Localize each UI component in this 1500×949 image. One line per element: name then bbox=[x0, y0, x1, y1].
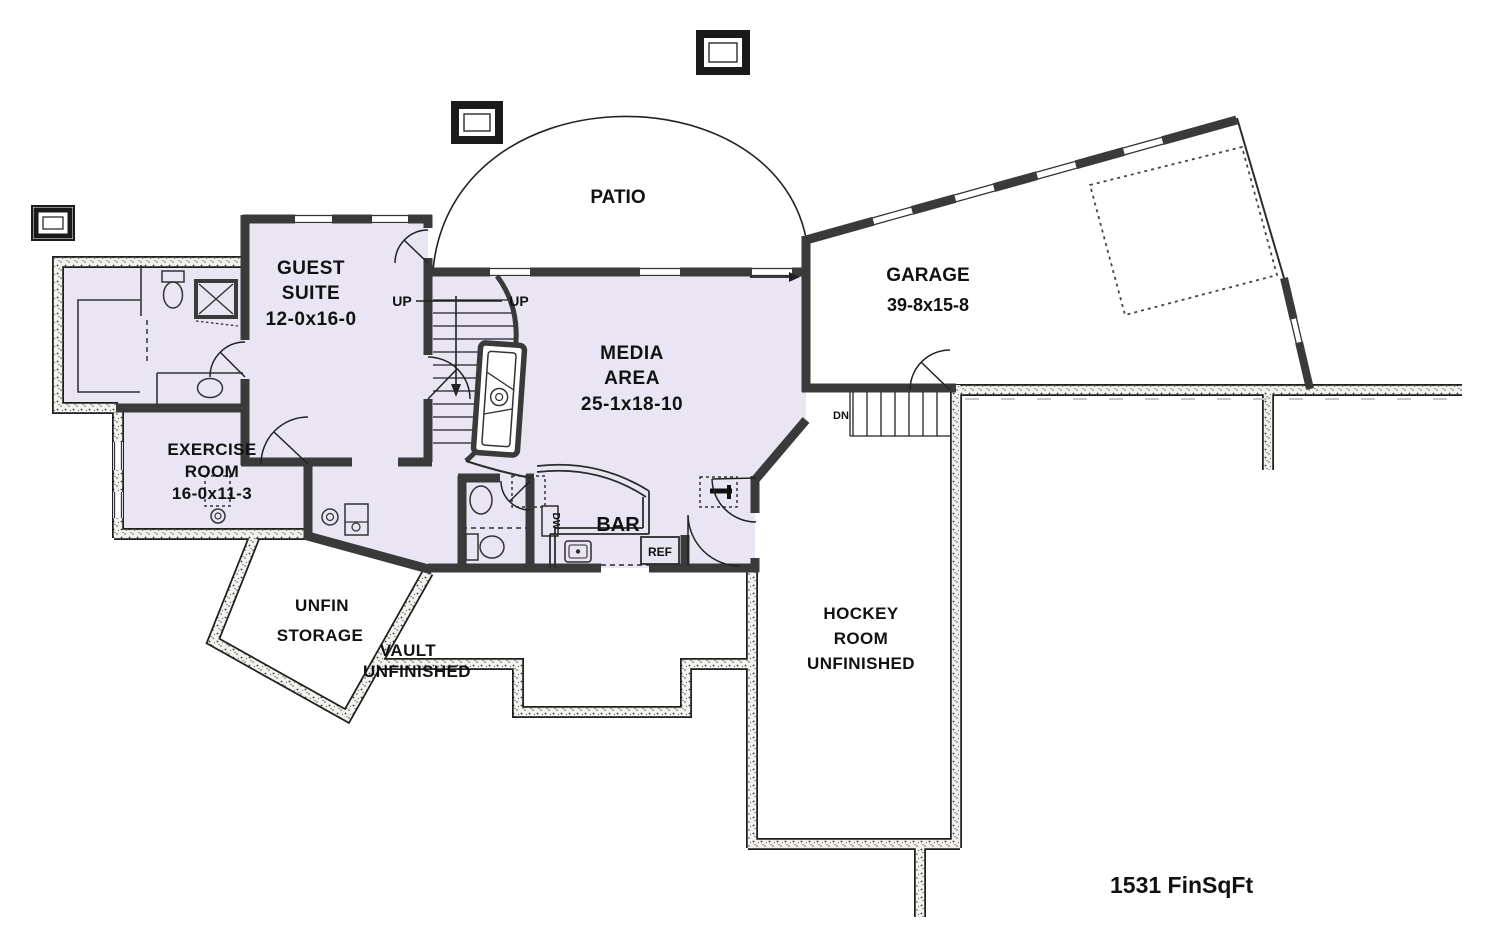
guest-suite-label-2: SUITE bbox=[282, 283, 340, 304]
unfin-storage-label-1: UNFIN bbox=[295, 596, 349, 615]
garage-dims: 39-8x15-8 bbox=[887, 295, 969, 315]
stairs-up-label-left: UP bbox=[392, 293, 411, 309]
stairs-up-label-right: UP bbox=[509, 293, 528, 309]
exercise-room-label-1: EXERCISE bbox=[167, 440, 256, 459]
media-area-label-1: MEDIA bbox=[600, 343, 664, 364]
hockey-room-label-1: HOCKEY bbox=[823, 604, 898, 623]
hockey-room-label-3: UNFINISHED bbox=[807, 654, 915, 673]
refrigerator-label: REF bbox=[648, 545, 672, 559]
media-area-dims: 25-1x18-10 bbox=[581, 394, 683, 415]
bar-label: BAR bbox=[596, 514, 640, 536]
pier-1 bbox=[697, 31, 749, 74]
vault-label-1: VAULT bbox=[380, 641, 436, 660]
stairs-down bbox=[850, 392, 951, 436]
media-fireplace-fixture bbox=[473, 343, 525, 456]
stairs-down-label: DN bbox=[833, 410, 849, 422]
deck-piers bbox=[32, 31, 749, 240]
pier-3 bbox=[32, 206, 74, 240]
garage-parking-outline bbox=[1090, 147, 1277, 315]
patio-label: PATIO bbox=[590, 187, 645, 208]
vault-label-2: UNFINISHED bbox=[363, 662, 471, 681]
guest-suite-label-1: GUEST bbox=[277, 258, 345, 279]
exercise-room-label-2: ROOM bbox=[185, 462, 239, 481]
pier-2 bbox=[452, 102, 502, 143]
finished-sqft-label: 1531 FinSqFt bbox=[1110, 872, 1253, 898]
unfin-storage-label-2: STORAGE bbox=[277, 626, 364, 645]
media-area-label-2: AREA bbox=[604, 368, 660, 389]
floor-plan-canvas: PATIO GUEST SUITE 12-0x16-0 GARAGE 39-8x… bbox=[0, 0, 1500, 949]
dishwasher-label: DW bbox=[550, 513, 561, 530]
guest-suite-dims: 12-0x16-0 bbox=[265, 309, 356, 330]
garage-walls bbox=[805, 117, 1313, 390]
floor-plan-page: PATIO GUEST SUITE 12-0x16-0 GARAGE 39-8x… bbox=[0, 0, 1500, 949]
hockey-room-label-2: ROOM bbox=[834, 629, 888, 648]
exercise-room-dims: 16-0x11-3 bbox=[172, 484, 252, 503]
garage-label: GARAGE bbox=[886, 265, 969, 286]
